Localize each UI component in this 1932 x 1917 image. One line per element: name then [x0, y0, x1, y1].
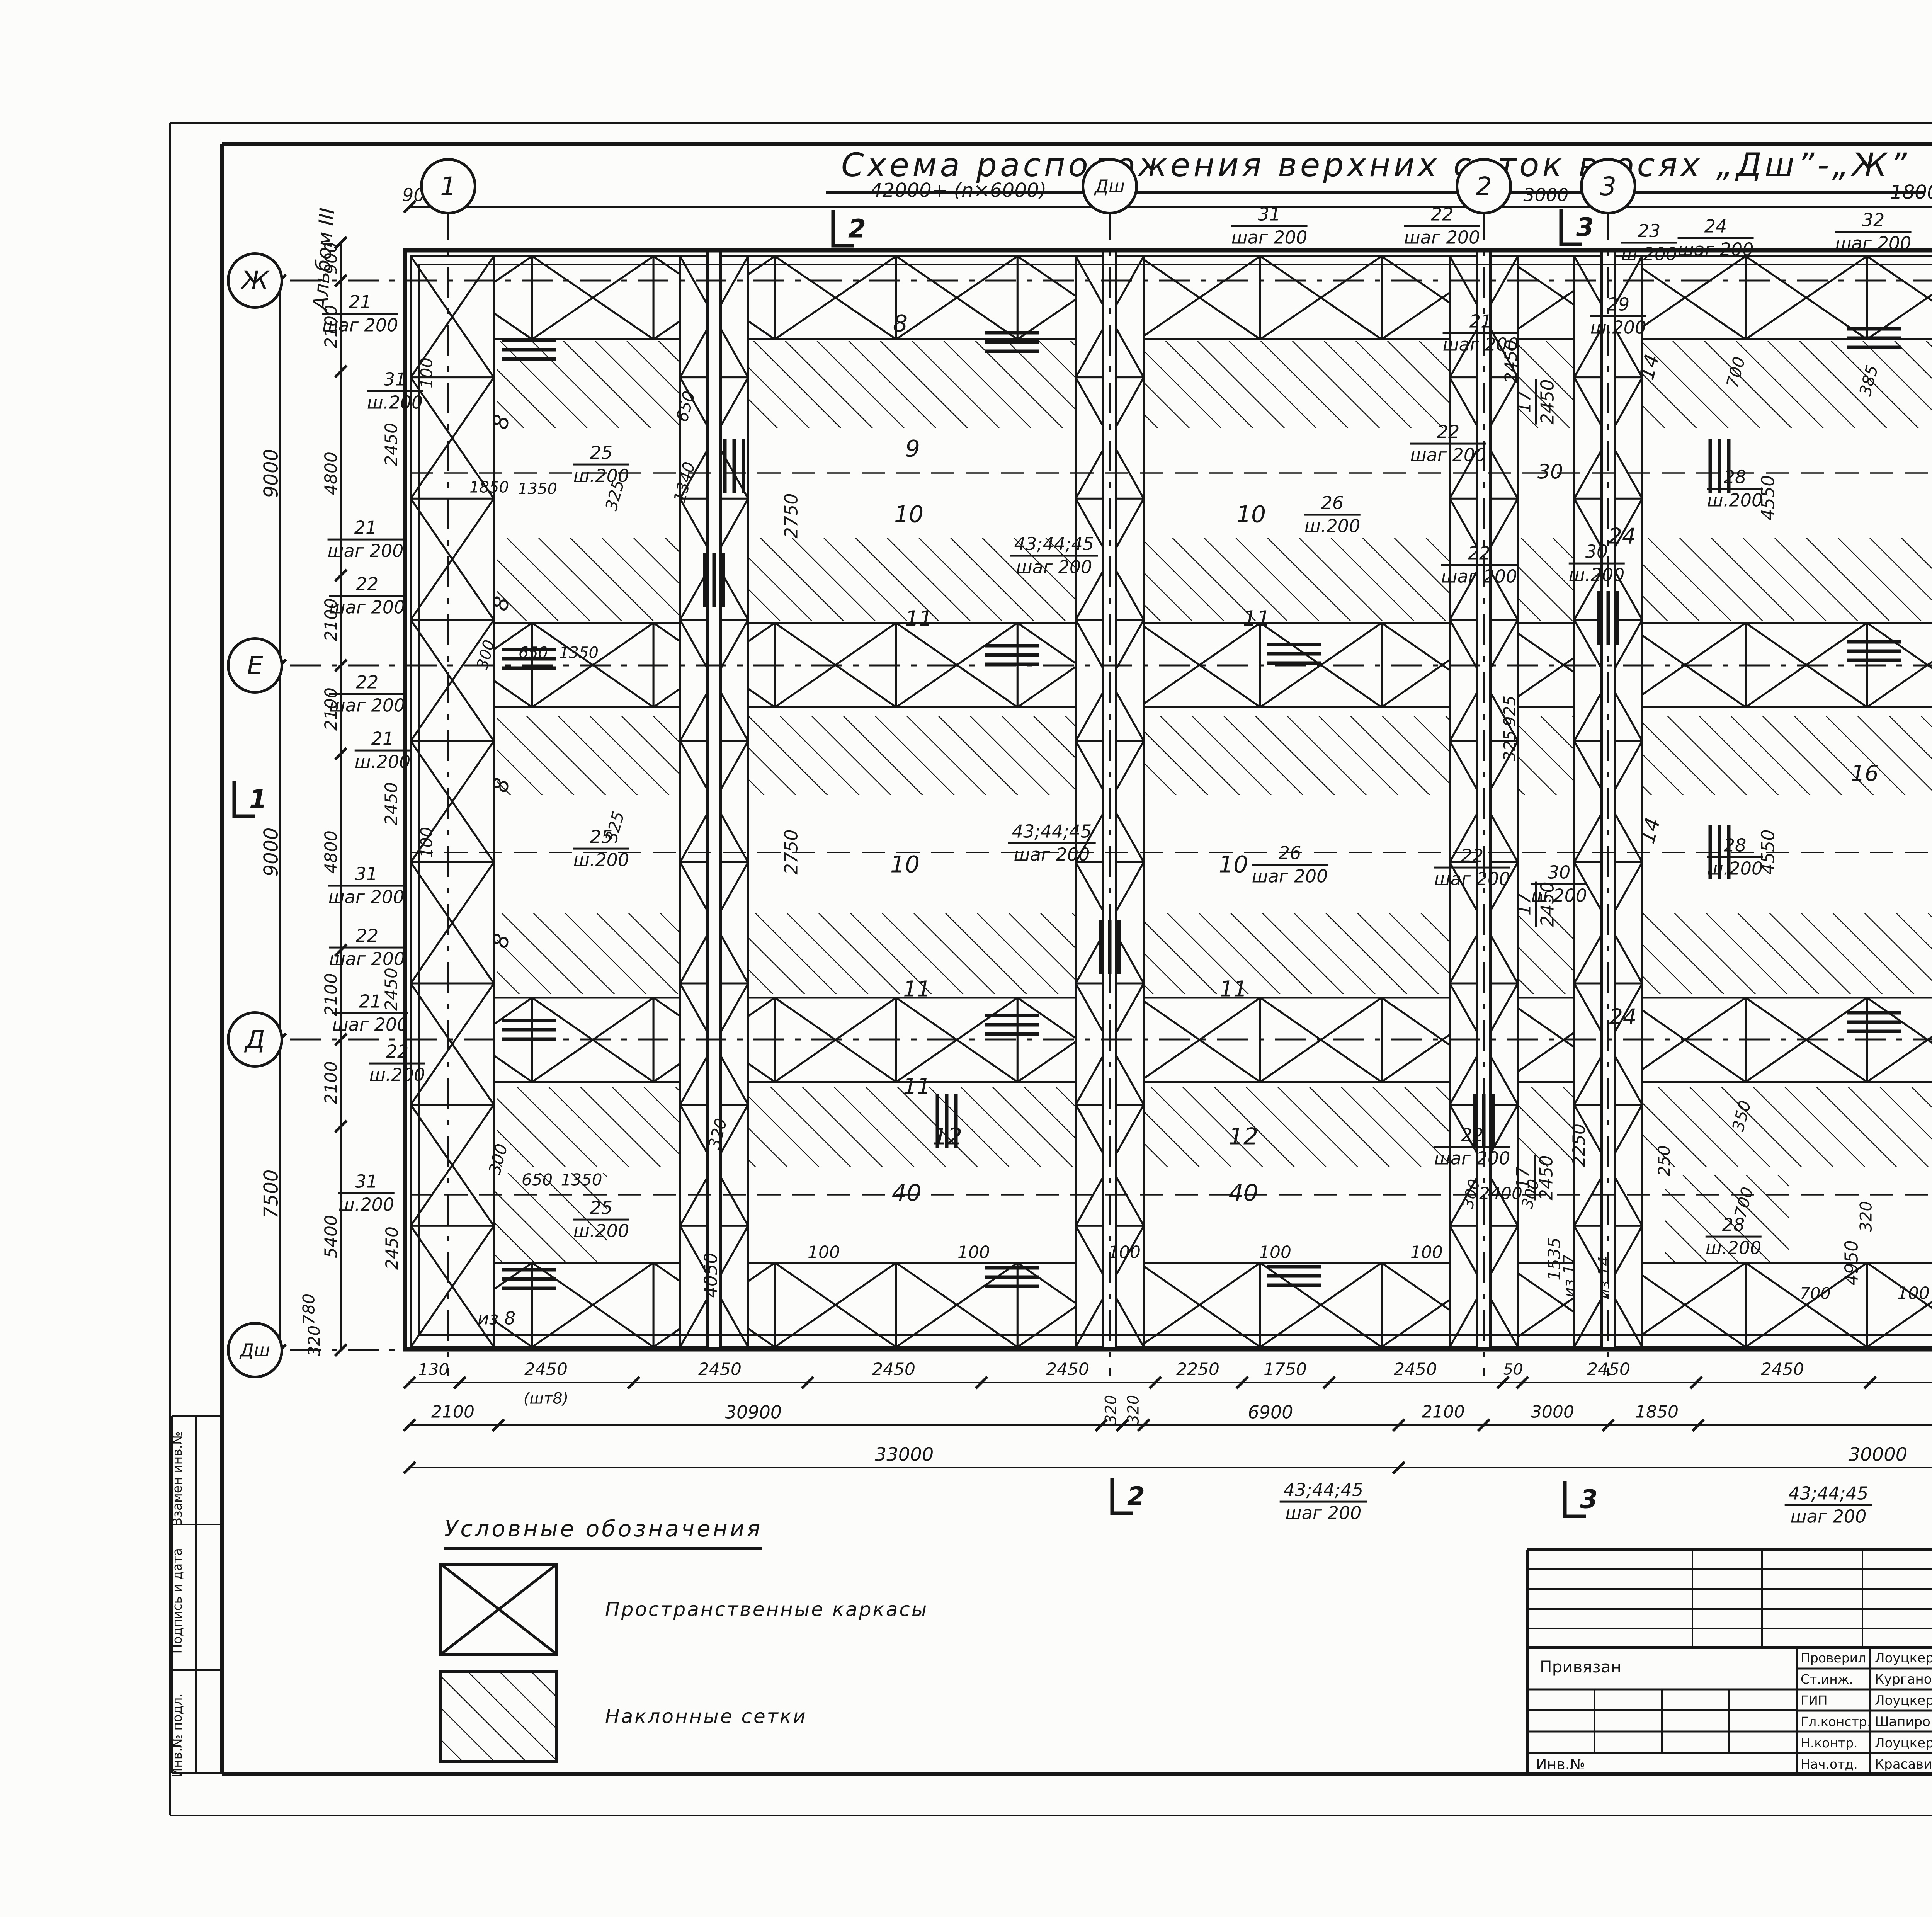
drawing-label: 18000+ (n×6000): [1890, 183, 1932, 202]
drawing-label: 33000: [875, 1446, 934, 1465]
drawing-label: 8: [893, 312, 908, 335]
drawing-label: 22шаг 200: [1410, 423, 1486, 464]
drawing-label: 2450: [383, 968, 401, 1011]
role-label: Проверил: [1801, 1651, 1866, 1665]
drawing-label: 100: [419, 827, 435, 858]
drawing-label: 31шаг 200: [1231, 206, 1308, 247]
drawing-label: 11: [905, 608, 932, 630]
drawing-label: 2100: [323, 687, 340, 731]
drawing-label: 32шаг 200: [1835, 211, 1912, 253]
drawing-label: 320: [1858, 1201, 1875, 1232]
drawing-label: 9000: [262, 827, 281, 876]
drawing-label: 28ш.200: [1707, 468, 1763, 510]
drawing-label: 100: [1897, 1285, 1930, 1303]
drawing-label: 2100: [323, 1061, 340, 1104]
drawing-label: 2100: [323, 598, 340, 641]
drawing-label: 1750: [1264, 1361, 1307, 1379]
drawing-label: 2100: [431, 1404, 474, 1421]
drawing-label: 26шаг 200: [1252, 844, 1328, 886]
drawing-label: 30: [1537, 462, 1563, 482]
drawing-label: 7500: [262, 1169, 281, 1218]
inv-label: Инв.№: [1536, 1756, 1585, 1773]
drawing-label: 2450: [383, 782, 401, 825]
drawing-label: 1850: [1635, 1404, 1679, 1421]
drawing-label: 11: [1243, 608, 1270, 630]
drawing-label: 6900: [1248, 1403, 1293, 1422]
role-name: Лоуцкер: [1875, 1651, 1932, 1666]
drawing-label: 320: [1126, 1395, 1142, 1424]
axis-circle-Дш: Дш: [1082, 158, 1138, 214]
drawing-label: 16: [1851, 762, 1878, 784]
drawing-label: 4550: [1759, 829, 1777, 874]
drawing-label: 925: [1502, 696, 1519, 726]
drawing-label: 2450: [524, 1361, 568, 1379]
legend-item-space-frames: Пространственные каркасы: [605, 1598, 928, 1621]
drawing-label: 2400: [1479, 1186, 1522, 1203]
drawing-label: (шт8): [524, 1391, 569, 1407]
axis-circle-Д: Д: [227, 1011, 283, 1068]
drawing-sheet: Альбом III Схема расположения верхних се…: [0, 0, 1932, 1917]
drawing-label: 22шаг 200: [1404, 206, 1480, 247]
drawing-label: 4950: [1843, 1240, 1861, 1285]
drawing-label: 250: [1656, 1145, 1673, 1176]
drawing-label: 100: [1259, 1244, 1291, 1262]
drawing-label: 40: [892, 1181, 921, 1205]
role-name: Лоуцкер: [1875, 1693, 1932, 1708]
drawing-label: 11: [903, 978, 930, 1000]
drawing-label: 650: [519, 645, 548, 661]
drawing-label: 4800: [323, 452, 340, 495]
drawing-label: 100: [1108, 1244, 1141, 1262]
drawing-label: 1850: [469, 480, 509, 496]
role-label: Ст.инж.: [1801, 1672, 1853, 1687]
drawing-label: 2750: [782, 493, 801, 538]
section-marker: 1: [249, 786, 267, 812]
axis-circle-Е: Е: [227, 637, 283, 694]
drawing-label: 4050: [702, 1252, 720, 1298]
drawing-label: 43;44;45шаг 200: [1280, 1481, 1367, 1522]
axis-circle-Ж: Ж: [227, 252, 283, 309]
role-label: Нач.отд.: [1801, 1757, 1858, 1772]
drawing-label: 4550: [1759, 475, 1777, 520]
drawing-label: 10: [890, 853, 920, 876]
drawing-label: 25ш.200: [573, 1199, 629, 1240]
drawing-label: 31ш.200: [367, 371, 423, 412]
drawing-label: 28ш.200: [1707, 837, 1763, 878]
role-label: Гл.констр.: [1801, 1715, 1871, 1729]
drawing-label: 24шаг 200: [1678, 218, 1754, 259]
drawing-label: 31ш.200: [338, 1173, 395, 1214]
drawing-label: 2450: [1761, 1361, 1804, 1379]
drawing-label: 12: [933, 1125, 962, 1148]
drawing-label: 2450: [1503, 340, 1520, 383]
drawing-label: 22шаг 200: [1441, 544, 1517, 586]
section-marker: 2: [848, 216, 866, 242]
drawing-label: 3000: [1531, 1404, 1574, 1421]
drawing-label: 2750: [782, 829, 801, 874]
drawing-label: 22шаг 200: [1434, 1126, 1510, 1168]
drawing-label: 1350: [561, 1172, 602, 1189]
drawing-label: 50: [1503, 1362, 1523, 1378]
drawing-label: 28ш.200: [1706, 1216, 1762, 1257]
drawing-label: 700: [1800, 1286, 1831, 1302]
drawing-label: 30ш.200: [1531, 864, 1587, 905]
drawing-label: 40: [1229, 1181, 1258, 1205]
drawing-label: 29ш.200: [1590, 296, 1646, 337]
drawing-label: 10: [894, 503, 923, 526]
role-label: Н.контр.: [1801, 1736, 1858, 1750]
role-name: Красавин: [1875, 1757, 1932, 1772]
privyazan-label: Привязан: [1540, 1658, 1621, 1676]
drawing-label: 23ш.200: [1621, 222, 1677, 264]
axis-circle-3: 3: [1580, 158, 1636, 214]
role-name: Курганова: [1875, 1672, 1932, 1687]
axis-circle-Дш: Дш: [227, 1322, 283, 1378]
drawing-label: 9000: [262, 449, 281, 498]
drawing-label: 650: [522, 1172, 553, 1189]
drawing-label: 100: [957, 1244, 990, 1262]
drawing-label: 1350: [518, 481, 557, 497]
drawing-label: 1350: [559, 645, 599, 661]
drawing-label: 2450: [1587, 1361, 1630, 1379]
axis-circle-2: 2: [1456, 158, 1512, 214]
drawing-label: 100: [419, 357, 435, 388]
stamp-cell-vzamen: Взамен инв.№: [170, 1472, 185, 1526]
drawing-label: 2250: [1571, 1124, 1588, 1167]
section-marker: 3: [1576, 214, 1594, 240]
drawing-label: 11: [903, 1075, 930, 1097]
drawing-label: 325: [1502, 730, 1519, 761]
section-marker: 3: [1580, 1486, 1598, 1512]
legend-heading: Условные обозначения: [444, 1516, 762, 1550]
drawing-label: 10: [1219, 853, 1248, 876]
stamp-cell-podpis: Подпись и дата: [170, 1600, 185, 1654]
drawing-label: 2100: [323, 973, 340, 1016]
drawing-label: 21ш.200: [355, 730, 411, 771]
drawing-label: 130: [418, 1362, 449, 1378]
drawing-label: 3000: [1523, 186, 1568, 204]
drawing-label: 30000: [1849, 1446, 1908, 1465]
role-name: Лоуцкер: [1875, 1736, 1932, 1751]
drawing-label: 22ш.200: [369, 1043, 425, 1084]
drawing-label: 4800: [323, 830, 340, 874]
drawing-label: 780: [301, 1294, 318, 1325]
drawing-label: 10: [1236, 503, 1266, 526]
section-marker: 2: [1127, 1483, 1145, 1509]
drawing-label: 26ш.200: [1304, 494, 1361, 536]
drawing-label: из 14: [1597, 1256, 1612, 1299]
drawing-label: 100: [808, 1244, 840, 1262]
drawing-label: 2450: [384, 1226, 401, 1270]
drawing-label: 2450: [872, 1361, 915, 1379]
drawing-label: 2250: [1176, 1361, 1219, 1379]
drawing-label: 320: [306, 1325, 323, 1356]
drawing-label: 2450: [698, 1361, 742, 1379]
reinforcement-plan-svg: [0, 0, 1932, 1917]
drawing-label: из 8: [478, 1310, 515, 1328]
drawing-label: 43;44;45шаг 200: [1010, 535, 1098, 577]
axis-circle-1: 1: [420, 158, 476, 214]
legend-item-inclined-mesh: Наклонные сетки: [605, 1705, 807, 1728]
drawing-label: 172450: [1515, 379, 1557, 424]
drawing-label: 2100: [1422, 1404, 1465, 1421]
drawing-label: 22шаг 200: [329, 927, 405, 968]
role-name: Шапиро: [1875, 1715, 1930, 1730]
drawing-label: 42000+ (n×6000): [870, 181, 1047, 201]
drawing-label: 11: [1219, 978, 1247, 1000]
drawing-label: 2450: [1394, 1361, 1437, 1379]
drawing-label: 30900: [725, 1403, 782, 1422]
drawing-label: 900: [323, 242, 340, 274]
drawing-label: 22шаг 200: [1434, 847, 1510, 888]
drawing-label: 2450: [1046, 1361, 1089, 1379]
drawing-label: 100: [1410, 1244, 1443, 1262]
drawing-label: 43;44;45шаг 200: [1008, 823, 1096, 864]
drawing-label: 30ш.200: [1569, 543, 1625, 584]
stamp-cell-inv: Инв.№ подл.: [170, 1723, 185, 1778]
drawing-label: 9: [905, 437, 920, 461]
drawing-label: 21шаг 200: [328, 519, 404, 560]
drawing-label: 25ш.200: [573, 444, 629, 485]
drawing-label: 2450: [383, 423, 401, 466]
drawing-label: 43;44;45шаг 200: [1785, 1485, 1872, 1526]
drawing-label: 2100: [323, 305, 340, 348]
role-label: ГИП: [1801, 1693, 1828, 1708]
drawing-label: 5400: [323, 1215, 340, 1258]
drawing-label: из 17: [1562, 1255, 1578, 1298]
drawing-label: 320: [1104, 1395, 1119, 1424]
drawing-label: 12: [1229, 1125, 1258, 1148]
drawing-label: 24: [1609, 1006, 1636, 1028]
